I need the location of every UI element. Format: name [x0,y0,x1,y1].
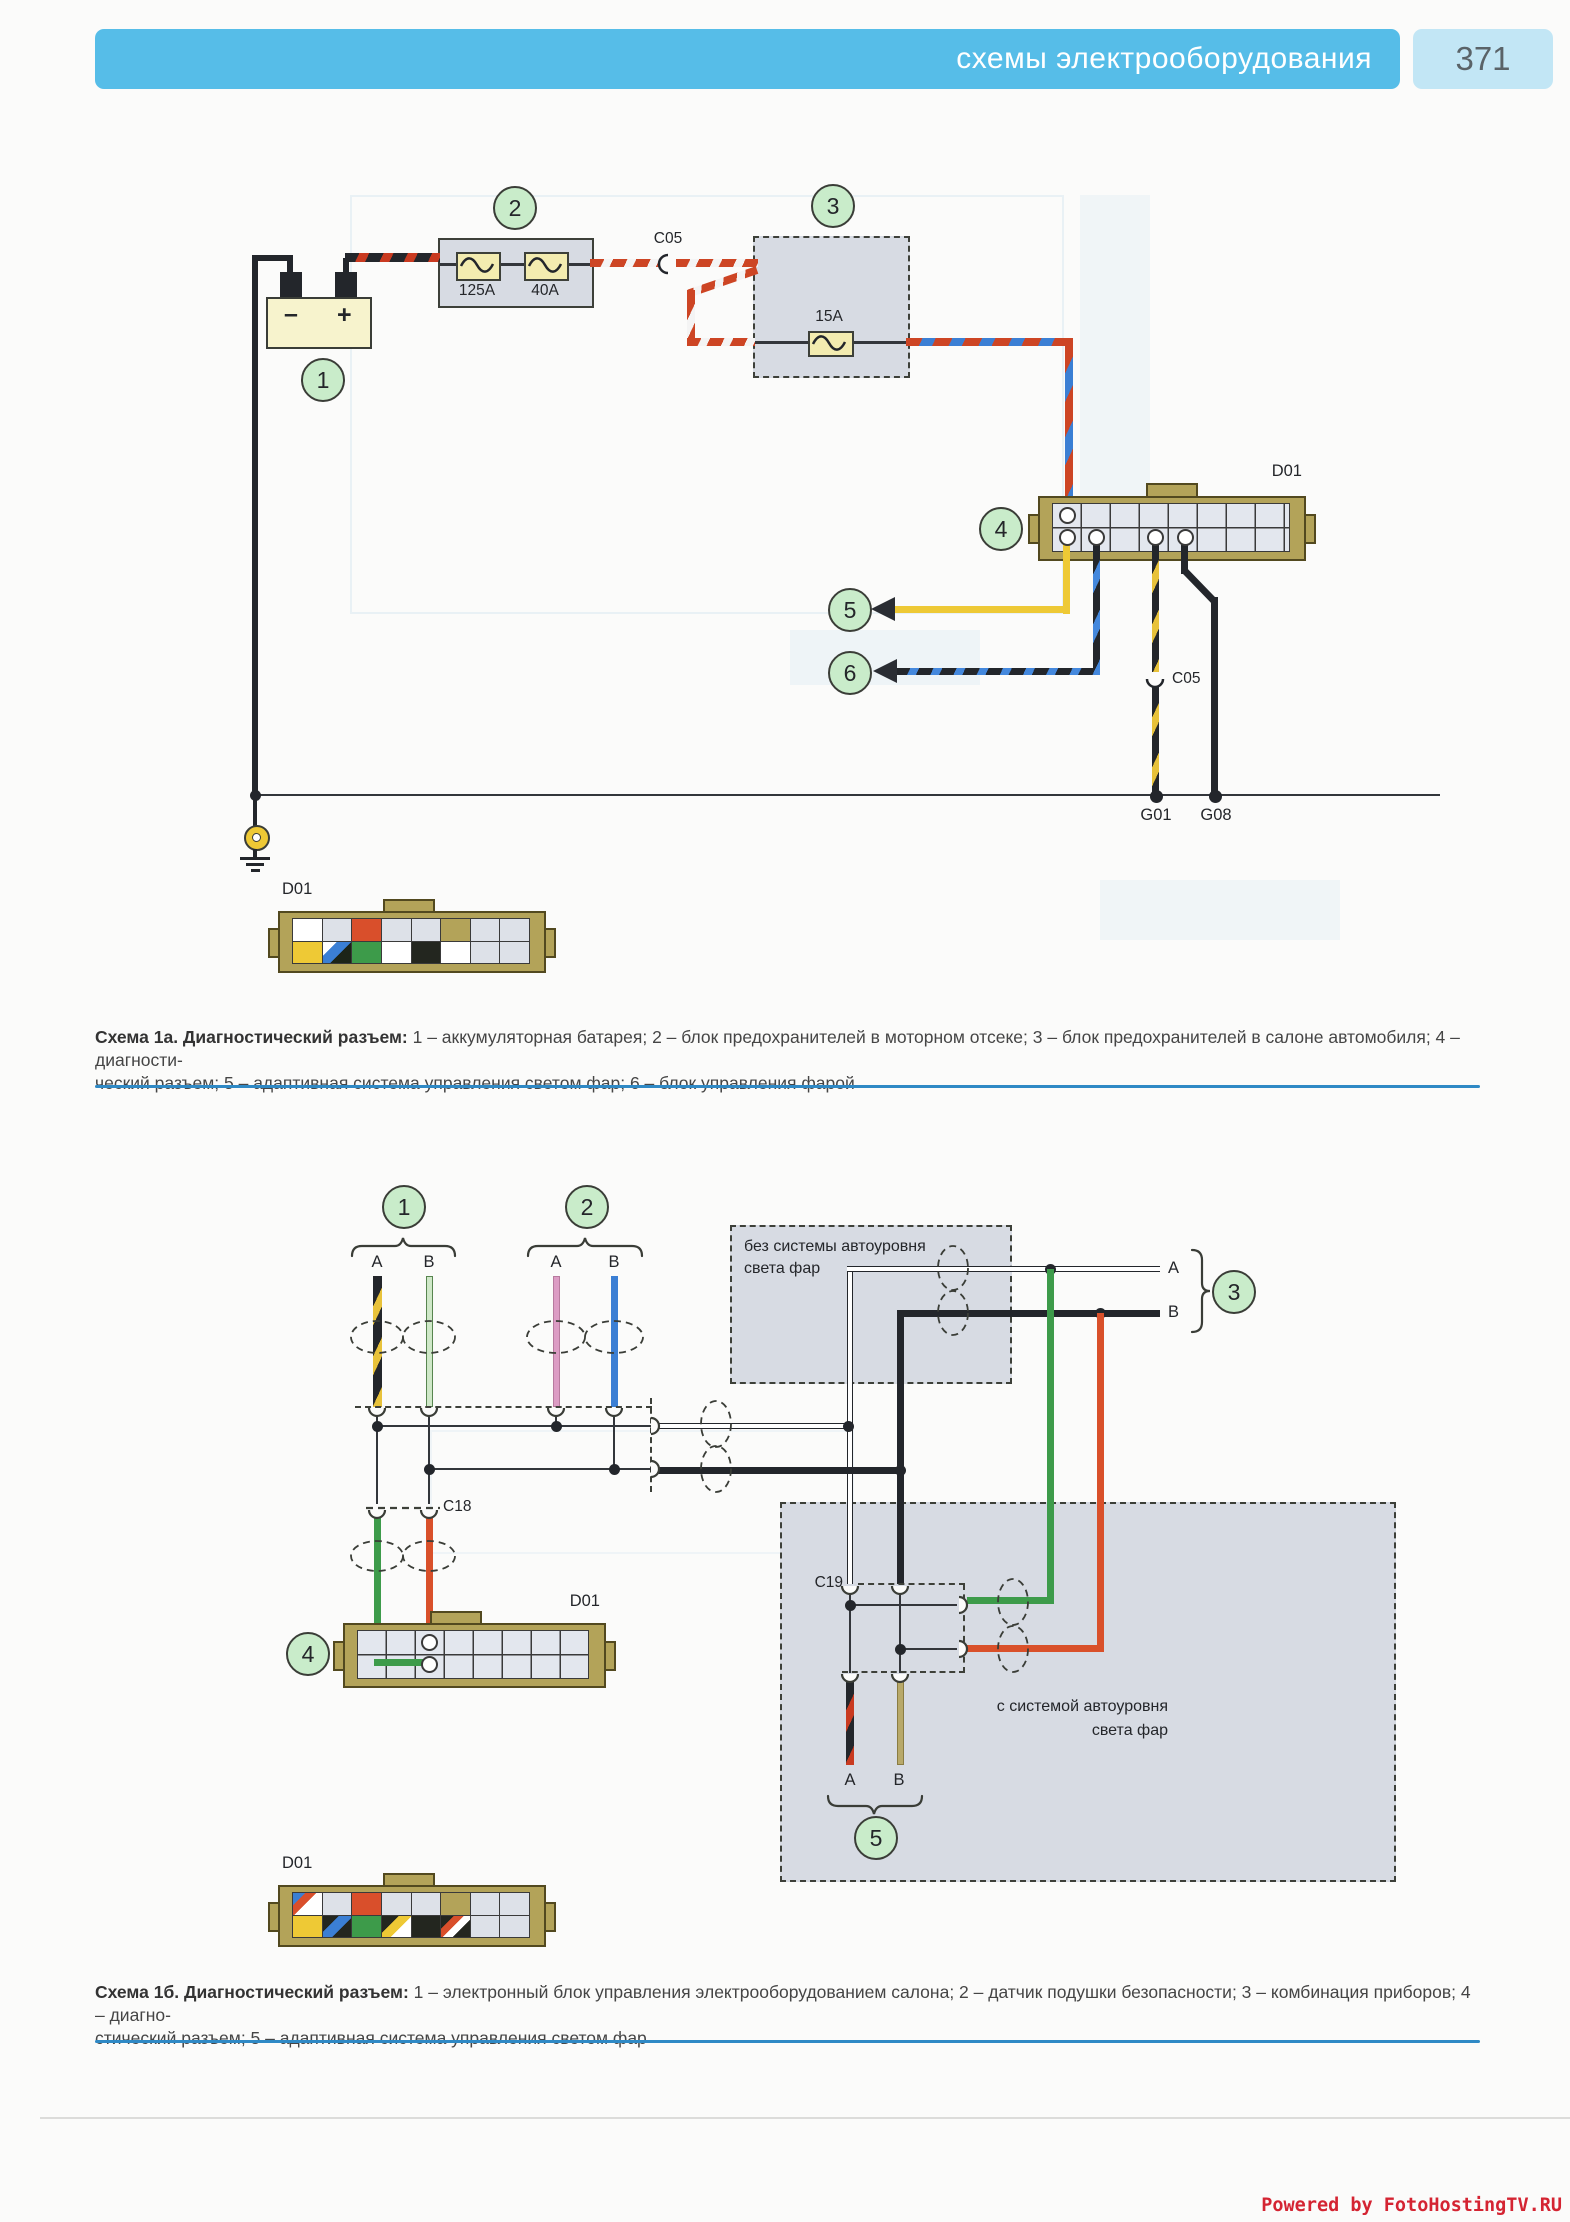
pin [1059,507,1076,524]
ground-line-2 [246,863,264,866]
box-with-text2: света фар [968,1722,1168,1740]
pin-cell [412,919,442,941]
comp5-pin-a: A [842,1771,858,1790]
pinout-row-top [293,919,529,942]
caption-b-line1: Схема 1б. Диагностический разъем: 1 – эл… [95,1981,1485,2027]
pinout-d01-b-grid [292,1892,530,1938]
scan-artifact [1100,880,1340,940]
fuse-40a [524,252,569,281]
scanned-manual-page: схемы электрооборудования 371 125A 40A 1… [0,0,1570,2222]
pin-cell [293,919,323,941]
callout-b5-num: 5 [870,1825,883,1852]
harness-boundary-h [355,1406,652,1408]
connector-d01b-grid [357,1630,589,1679]
c19-block-bottom [842,1671,965,1673]
junction-dot [895,1465,906,1476]
pin [1059,529,1076,546]
pin-cell [293,942,323,964]
wire-2a-pink [553,1276,560,1407]
wire-red-vert [1097,1313,1104,1651]
wire-black-v2 [1211,597,1218,795]
connector-d01b-label: D01 [530,1592,600,1611]
pin [1088,529,1105,546]
pin-cell [323,942,353,964]
junction-dot [895,1644,906,1655]
wire-red-horiz [967,1645,1104,1652]
pin-cell [323,919,353,941]
wire-black-blue-v [1093,544,1100,675]
wire-blackB-bus [655,1467,903,1474]
bus-a [377,1425,652,1428]
wire-red-blue-h [906,338,1073,346]
pin-cell [412,1893,442,1915]
wire-red-blue-v [1065,338,1073,510]
wire-battery-minus-h [252,255,293,261]
junction-dot [845,1600,856,1611]
callout-4-num: 4 [995,516,1008,543]
pin-cell [323,1893,353,1915]
callout-b1-num: 1 [398,1194,411,1221]
callout-b2: 2 [565,1185,609,1229]
wire-blackB-b [897,1310,1161,1317]
battery-plus-sign: + [337,301,352,330]
page-number-badge: 371 [1413,29,1553,89]
ground-dot-g01 [1150,790,1163,803]
wire-black-yellow-v1 [1152,544,1159,672]
junction-dot [424,1464,435,1475]
pin-cell [412,942,442,964]
callout-b1: 1 [382,1185,426,1229]
callout-b4: 4 [286,1632,330,1676]
callout-6-num: 6 [844,660,857,687]
page-edge-line [40,2117,1570,2119]
callout-b5: 5 [854,1816,898,1860]
comp5-pin-b: B [891,1771,907,1790]
callout-b2-num: 2 [581,1194,594,1221]
caption-b-line2: стический разъем; 5 – адаптивная система… [95,2027,1485,2050]
section-divider [95,1085,1480,1088]
scan-artifact [790,630,980,685]
arrow-left-icon [873,659,897,683]
caption-a-lead: Схема 1а. Диагностический разъем: [95,1027,408,1047]
pin-cell [352,1916,382,1938]
pin-cell [471,942,501,964]
comp2-pin-b: B [606,1253,622,1272]
callout-2-num: 2 [509,195,522,222]
ground-line-1 [240,857,270,860]
pin [421,1656,438,1673]
pin-cell [382,1893,412,1915]
fuse-15a [808,331,854,357]
wire-yellow-h [893,606,1070,613]
box-without-text1: без системы автоуровня [744,1238,926,1256]
callout-5: 5 [828,588,872,632]
pinout-row-bottom [293,1916,529,1938]
wire-red-white-1 [590,259,660,267]
ground-g01-label: G01 [1126,806,1186,825]
c19-wire-right [899,1590,902,1673]
wire-black-blue-h [896,668,1100,675]
comp1-pin-a: A [369,1253,385,1272]
wire-2b-blue [611,1276,618,1407]
wire-1a-black-yellow [373,1276,382,1407]
pin-cell [471,919,501,941]
callout-1-num: 1 [317,367,330,394]
pinout-d01b-label: D01 [282,1854,312,1873]
fuse-125a [456,252,501,281]
arrow-left-icon [871,597,895,621]
wire-battery-minus-drop [252,255,258,795]
pin-cell [382,1916,412,1938]
ground-line-3 [251,869,260,872]
wire-black-yellow-v2 [1152,687,1159,795]
wire-red-white-loop-h [687,338,755,346]
c19-row [858,1583,965,1585]
scan-artifact [1080,195,1150,525]
watermark: Powered by FotoHostingTV.RU [1190,2195,1562,2216]
wire-5b-tan [897,1680,904,1765]
pin-cell [471,1916,501,1938]
callout-6: 6 [828,651,872,695]
pin-cell [352,919,382,941]
ground-stem [253,796,258,827]
wire-red-white-2 [676,259,758,267]
pin-cell [352,942,382,964]
wire-red-white-diag [688,266,759,297]
wire-white-a [847,1266,1160,1272]
connector-d01-label: D01 [1230,462,1302,481]
wire-1b-light-green [426,1276,433,1407]
fuse-125a-label: 125A [454,282,500,300]
connector-c18-label: C18 [443,1498,471,1516]
pinout-row-bottom [293,942,529,964]
wire-green-vert [1047,1269,1054,1603]
connector-c05-top-label: C05 [638,230,698,248]
callout-2: 2 [493,186,537,230]
pin [1177,529,1194,546]
header-bar: схемы электрооборудования [95,29,1400,89]
callout-4: 4 [979,507,1023,551]
pin-cell [500,942,529,964]
fuse-40a-label: 40A [522,282,568,300]
inline-connector-icon [659,255,1163,687]
wire-green-into-d01 [374,1659,426,1666]
pin-cell [441,919,471,941]
wire-yellow-v [1063,544,1070,614]
comp2-pin-a: A [548,1253,564,1272]
callout-1: 1 [301,358,345,402]
page-number: 371 [1455,40,1510,78]
callout-b4-num: 4 [302,1641,315,1668]
fuse-15a-label: 15A [804,308,854,326]
caption-a-line2: ческий разъем; 5 – адаптивная система уп… [95,1072,1485,1095]
section-divider [95,2040,1480,2043]
page-title: схемы электрооборудования [956,42,1400,76]
pinout-d01-a-grid [292,918,530,964]
pin-cell [293,1916,323,1938]
callout-5-num: 5 [844,597,857,624]
c19-branch-green [850,1604,957,1607]
comp3-pin-a: A [1168,1259,1179,1278]
wire-green-horiz [967,1597,1054,1604]
wire-white-bus [655,1423,848,1429]
battery [266,297,372,349]
harness-boundary-v [650,1398,652,1492]
ground-bus [255,794,1440,797]
pin-cell [441,1916,471,1938]
callout-3: 3 [811,184,855,228]
caption-b-lead: Схема 1б. Диагностический разъем: [95,1982,409,2002]
junction-dot [551,1421,562,1432]
pin-cell [412,1916,442,1938]
ground-dot-g08 [1209,790,1222,803]
comp1-pin-b: B [421,1253,437,1272]
comp3-pin-b: B [1168,1303,1179,1322]
wire-black-v1 [1181,544,1188,574]
pin-cell [352,1893,382,1915]
callout-b3-num: 3 [1228,1279,1241,1306]
pin-cell [471,1893,501,1915]
pin-cell [441,942,471,964]
callout-3-num: 3 [827,193,840,220]
pinout-row-top [293,1893,529,1916]
pinout-d01-label: D01 [282,880,312,899]
pin-cell [382,919,412,941]
box-without-text2: света фар [744,1260,820,1278]
ground-stem2 [253,849,257,857]
pin-cell [500,919,529,941]
wire-black-diagonal [1184,570,1214,601]
stub-2b [613,1413,616,1470]
callout-b3: 3 [1212,1270,1256,1314]
pin [421,1634,438,1651]
c19-block-right [963,1584,965,1673]
pin [1147,529,1164,546]
pin-cell [441,1893,471,1915]
junction-dot [609,1464,620,1475]
pin-cell [323,1916,353,1938]
box-with-text1: с системой автоуровня [968,1698,1168,1716]
wire-blackB-vert [897,1310,904,1584]
c19-branch-red [900,1648,957,1651]
wire-red-white-loop-v [687,290,695,345]
pin-cell [382,942,412,964]
junction-dot [372,1421,383,1432]
connector-c19-label: C19 [795,1574,843,1592]
ground-g08-label: G08 [1186,806,1246,825]
connector-c05-mid-label: C05 [1172,670,1200,688]
battery-terminal-minus [280,272,302,299]
pin-cell [500,1916,529,1938]
junction-dot [843,1421,854,1432]
connector-d01-grid [1052,503,1290,552]
battery-terminal-plus [335,272,357,299]
wire-5a-black-red [846,1680,854,1765]
pin-cell [500,1893,529,1915]
battery-minus-sign: – [284,300,298,329]
wire-black-red [345,253,440,262]
caption-a-line1: Схема 1а. Диагностический разъем: 1 – ак… [95,1026,1485,1072]
ground-ring-hole [252,833,261,842]
pin-cell [293,1893,323,1915]
